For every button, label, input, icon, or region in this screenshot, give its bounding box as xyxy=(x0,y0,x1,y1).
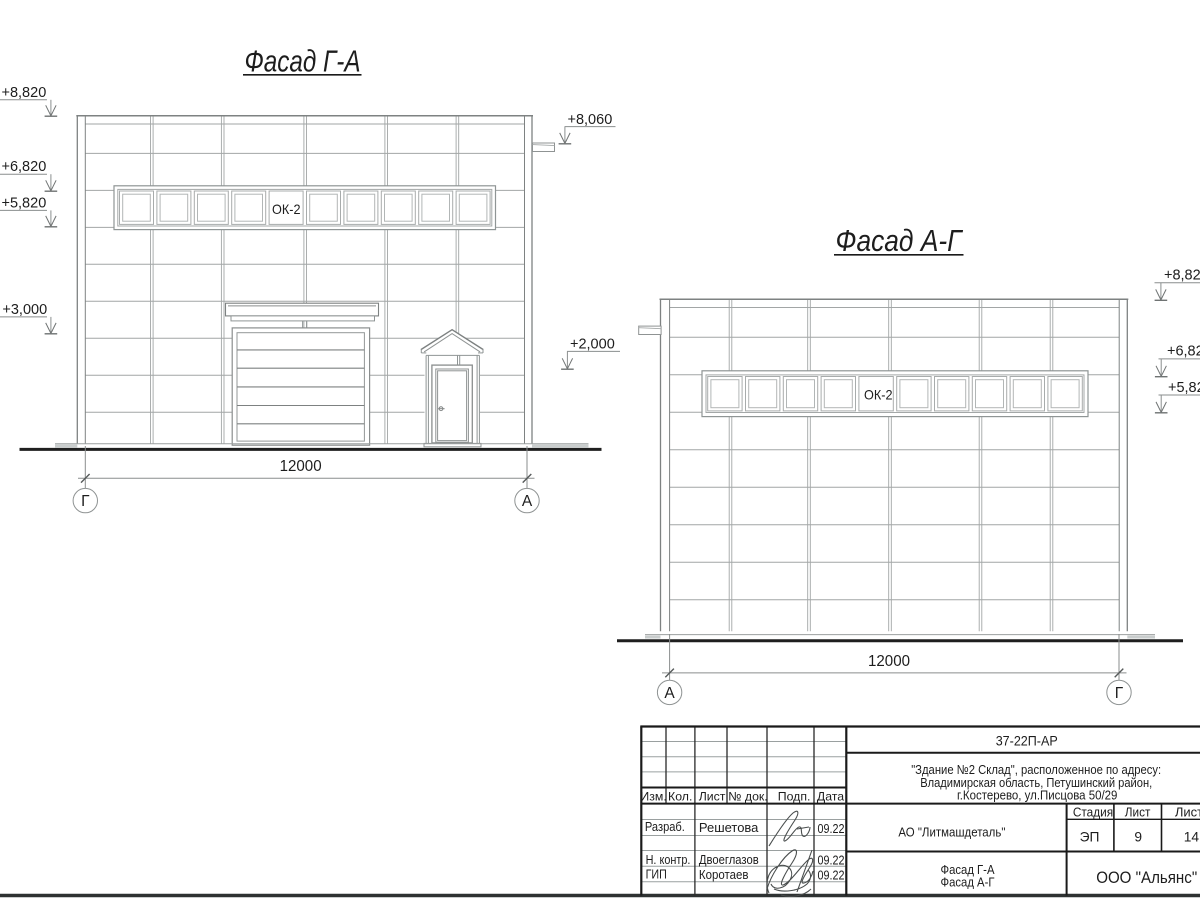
svg-text:Двоеглазов: Двоеглазов xyxy=(699,852,759,867)
svg-text:9: 9 xyxy=(1134,829,1142,844)
svg-text:12000: 12000 xyxy=(280,458,322,475)
svg-text:г.Костерево, ул.Писцова 50/29: г.Костерево, ул.Писцова 50/29 xyxy=(957,788,1118,803)
svg-text:+6,820: +6,820 xyxy=(1167,344,1200,360)
svg-text:А: А xyxy=(664,685,675,702)
svg-text:Г: Г xyxy=(1115,685,1124,702)
svg-text:14: 14 xyxy=(1184,829,1200,844)
svg-text:Изм.: Изм. xyxy=(640,790,666,804)
svg-text:+2,000: +2,000 xyxy=(570,337,615,353)
svg-text:Стадия: Стадия xyxy=(1073,804,1113,819)
svg-text:+8,060: +8,060 xyxy=(568,112,613,128)
svg-text:Решетова: Решетова xyxy=(699,820,759,835)
svg-text:Кол.: Кол. xyxy=(668,790,692,804)
svg-text:Лист: Лист xyxy=(699,790,726,804)
svg-text:12000: 12000 xyxy=(868,653,910,670)
svg-text:№ док.: № док. xyxy=(728,790,767,804)
svg-text:ОК-2: ОК-2 xyxy=(272,201,301,217)
svg-text:Фасад Г-А: Фасад Г-А xyxy=(245,44,361,79)
svg-text:Лист: Лист xyxy=(1125,804,1151,819)
svg-text:+5,820: +5,820 xyxy=(2,196,47,212)
svg-text:+6,820: +6,820 xyxy=(2,159,47,175)
svg-text:Дата: Дата xyxy=(817,790,844,804)
svg-text:АО "Литмашдеталь": АО "Литмашдеталь" xyxy=(898,824,1005,839)
svg-text:ГИП: ГИП xyxy=(646,867,667,882)
svg-text:+3,000: +3,000 xyxy=(2,302,47,318)
svg-text:Листов: Листов xyxy=(1175,804,1200,819)
svg-text:Фасад А-Г: Фасад А-Г xyxy=(941,874,995,889)
svg-text:09.22: 09.22 xyxy=(818,868,845,883)
svg-text:Разраб.: Разраб. xyxy=(645,819,685,834)
svg-text:Коротаев: Коротаев xyxy=(699,867,749,882)
svg-text:ОК-2: ОК-2 xyxy=(864,387,893,403)
svg-text:ЭП: ЭП xyxy=(1080,829,1100,844)
svg-text:09.22: 09.22 xyxy=(818,852,845,867)
svg-text:А: А xyxy=(522,493,533,510)
svg-text:Г: Г xyxy=(81,493,90,510)
svg-text:Подп.: Подп. xyxy=(778,790,811,804)
svg-text:+8,820: +8,820 xyxy=(1164,268,1200,284)
svg-text:Н. контр.: Н. контр. xyxy=(646,852,691,867)
svg-text:37-22П-АР: 37-22П-АР xyxy=(996,733,1058,749)
svg-text:Фасад А-Г: Фасад А-Г xyxy=(836,223,964,258)
svg-text:09.22: 09.22 xyxy=(818,821,845,836)
svg-text:+5,820: +5,820 xyxy=(1168,380,1200,396)
svg-text:ООО "Альянс": ООО "Альянс" xyxy=(1096,869,1197,887)
svg-text:+8,820: +8,820 xyxy=(2,85,47,101)
